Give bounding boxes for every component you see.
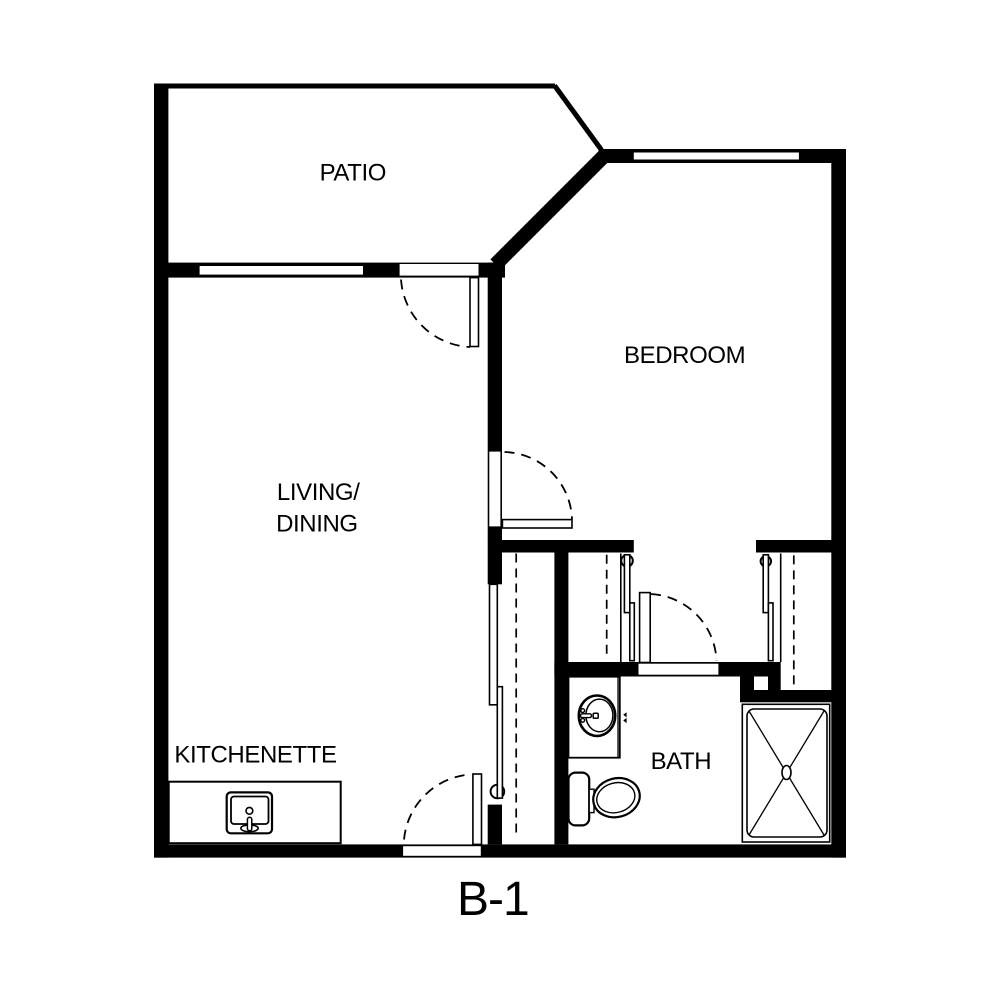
svg-text:BATH: BATH [651, 748, 712, 775]
svg-text:BEDROOM: BEDROOM [624, 342, 745, 369]
svg-text:DINING: DINING [276, 510, 358, 537]
svg-text:KITCHENETTE: KITCHENETTE [174, 741, 336, 768]
svg-text:PATIO: PATIO [320, 160, 386, 187]
svg-text:LIVING/: LIVING/ [277, 479, 360, 506]
svg-text:B-1: B-1 [457, 873, 529, 926]
